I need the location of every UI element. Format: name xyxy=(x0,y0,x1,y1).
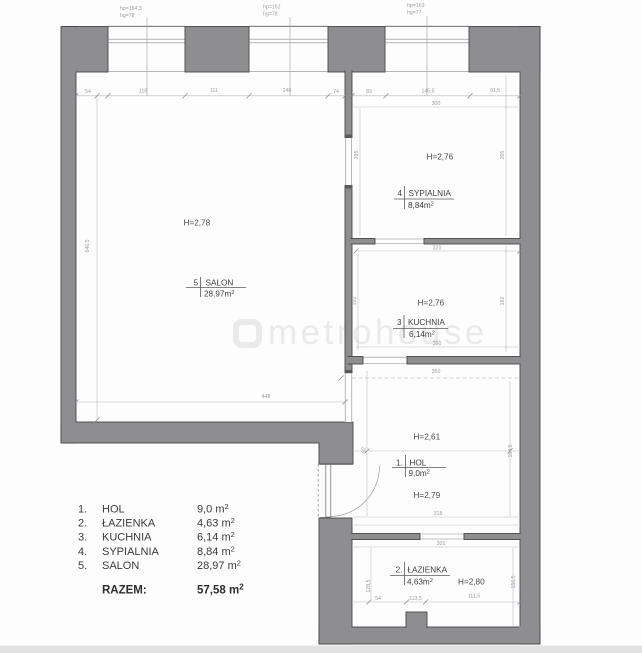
svg-text:91,5: 91,5 xyxy=(490,88,500,94)
svg-text:H=2,61: H=2,61 xyxy=(414,433,441,442)
svg-text:320: 320 xyxy=(433,246,442,252)
svg-text:192: 192 xyxy=(500,297,506,306)
svg-text:448: 448 xyxy=(262,394,271,400)
svg-text:28,97m2: 28,97m2 xyxy=(204,290,234,299)
svg-text:hp=162: hp=162 xyxy=(263,5,281,11)
svg-text:5.: 5. xyxy=(78,560,87,572)
svg-text:SYPIALNIA: SYPIALNIA xyxy=(409,189,452,198)
svg-text:646,5: 646,5 xyxy=(85,239,91,252)
svg-text:HOL: HOL xyxy=(102,504,125,516)
svg-text:SALON: SALON xyxy=(102,560,139,572)
svg-text:4,63m2: 4,63m2 xyxy=(407,578,433,587)
svg-text:83: 83 xyxy=(366,89,372,95)
svg-text:SALON: SALON xyxy=(206,279,234,288)
svg-text:metrohouse: metrohouse xyxy=(268,313,488,352)
svg-text:9,0m2: 9,0m2 xyxy=(409,469,430,478)
svg-text:6,14m2: 6,14m2 xyxy=(409,330,435,339)
svg-text:KUCHNIA: KUCHNIA xyxy=(102,532,152,544)
svg-text:1.: 1. xyxy=(78,504,87,516)
svg-text:8,84m2: 8,84m2 xyxy=(408,201,434,210)
svg-text:ŁAZIENKA: ŁAZIENKA xyxy=(408,566,448,575)
svg-text:1.: 1. xyxy=(396,459,403,468)
svg-text:301: 301 xyxy=(437,541,446,547)
svg-text:145,5: 145,5 xyxy=(422,88,435,94)
svg-text:140: 140 xyxy=(283,88,292,94)
svg-text:74: 74 xyxy=(333,89,339,95)
svg-text:H=2,80: H=2,80 xyxy=(458,578,485,587)
svg-text:ŁAZIENKA: ŁAZIENKA xyxy=(102,518,156,530)
svg-text:92: 92 xyxy=(362,447,368,453)
svg-text:295: 295 xyxy=(500,151,506,160)
svg-text:hg=78: hg=78 xyxy=(120,13,135,19)
svg-text:28,97 m2: 28,97 m2 xyxy=(197,558,241,572)
svg-text:H=2,76: H=2,76 xyxy=(427,153,454,162)
svg-text:9,0 m2: 9,0 m2 xyxy=(197,502,229,516)
svg-text:54: 54 xyxy=(375,596,381,602)
svg-text:hp=163: hp=163 xyxy=(407,3,425,9)
svg-text:111,5: 111,5 xyxy=(468,594,480,600)
svg-text:hg=77: hg=77 xyxy=(407,10,422,16)
svg-text:2.: 2. xyxy=(396,566,403,575)
svg-text:3: 3 xyxy=(397,318,402,327)
svg-text:194,5: 194,5 xyxy=(508,444,514,457)
svg-text:54: 54 xyxy=(85,89,91,95)
svg-text:KUCHNIA: KUCHNIA xyxy=(408,318,445,327)
svg-text:HOL: HOL xyxy=(410,459,427,468)
svg-text:192: 192 xyxy=(352,297,358,306)
svg-text:RAZEM:: RAZEM: xyxy=(102,585,147,597)
svg-text:4.: 4. xyxy=(78,546,87,558)
svg-text:118: 118 xyxy=(139,89,147,95)
svg-text:8,84 m2: 8,84 m2 xyxy=(197,544,235,558)
svg-text:350: 350 xyxy=(432,369,441,375)
svg-text:4,63 m2: 4,63 m2 xyxy=(197,516,235,530)
svg-text:hp=164,3: hp=164,3 xyxy=(120,6,142,12)
svg-text:5: 5 xyxy=(193,279,198,288)
svg-text:57,58 m2: 57,58 m2 xyxy=(197,583,244,597)
svg-text:SYPIALNIA: SYPIALNIA xyxy=(102,546,160,558)
svg-text:156,5: 156,5 xyxy=(511,575,517,588)
svg-text:128,5: 128,5 xyxy=(366,579,372,592)
svg-text:H=2,78: H=2,78 xyxy=(184,219,211,228)
svg-text:hg=78: hg=78 xyxy=(263,12,278,18)
svg-text:6,14 m2: 6,14 m2 xyxy=(197,530,235,544)
svg-text:H=2,76: H=2,76 xyxy=(418,299,445,308)
svg-text:113,5: 113,5 xyxy=(409,596,422,602)
svg-text:4: 4 xyxy=(397,189,402,198)
svg-text:300: 300 xyxy=(432,101,441,107)
svg-text:350: 350 xyxy=(433,341,442,347)
svg-text:H=2,79: H=2,79 xyxy=(414,491,441,500)
svg-text:318: 318 xyxy=(434,511,443,517)
svg-text:295: 295 xyxy=(354,151,360,160)
svg-text:111: 111 xyxy=(210,88,218,94)
svg-text:3.: 3. xyxy=(78,532,87,544)
svg-text:2.: 2. xyxy=(78,518,87,530)
